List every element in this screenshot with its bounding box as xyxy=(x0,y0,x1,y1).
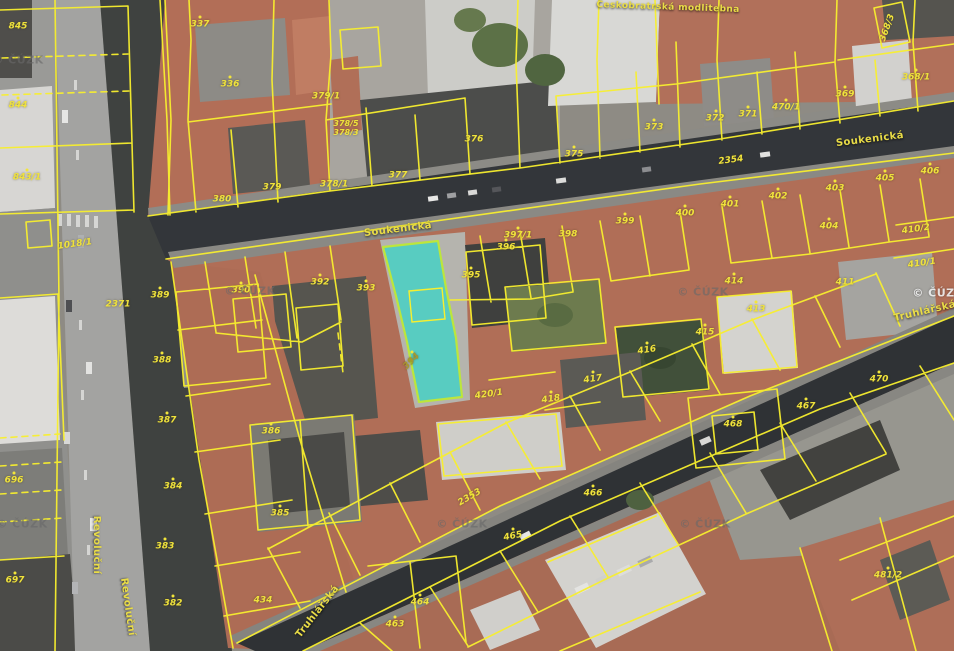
map-viewport[interactable]: 845844843/1337336380379379/1378/5378/337… xyxy=(0,0,954,651)
orthophoto-layer xyxy=(0,0,954,651)
